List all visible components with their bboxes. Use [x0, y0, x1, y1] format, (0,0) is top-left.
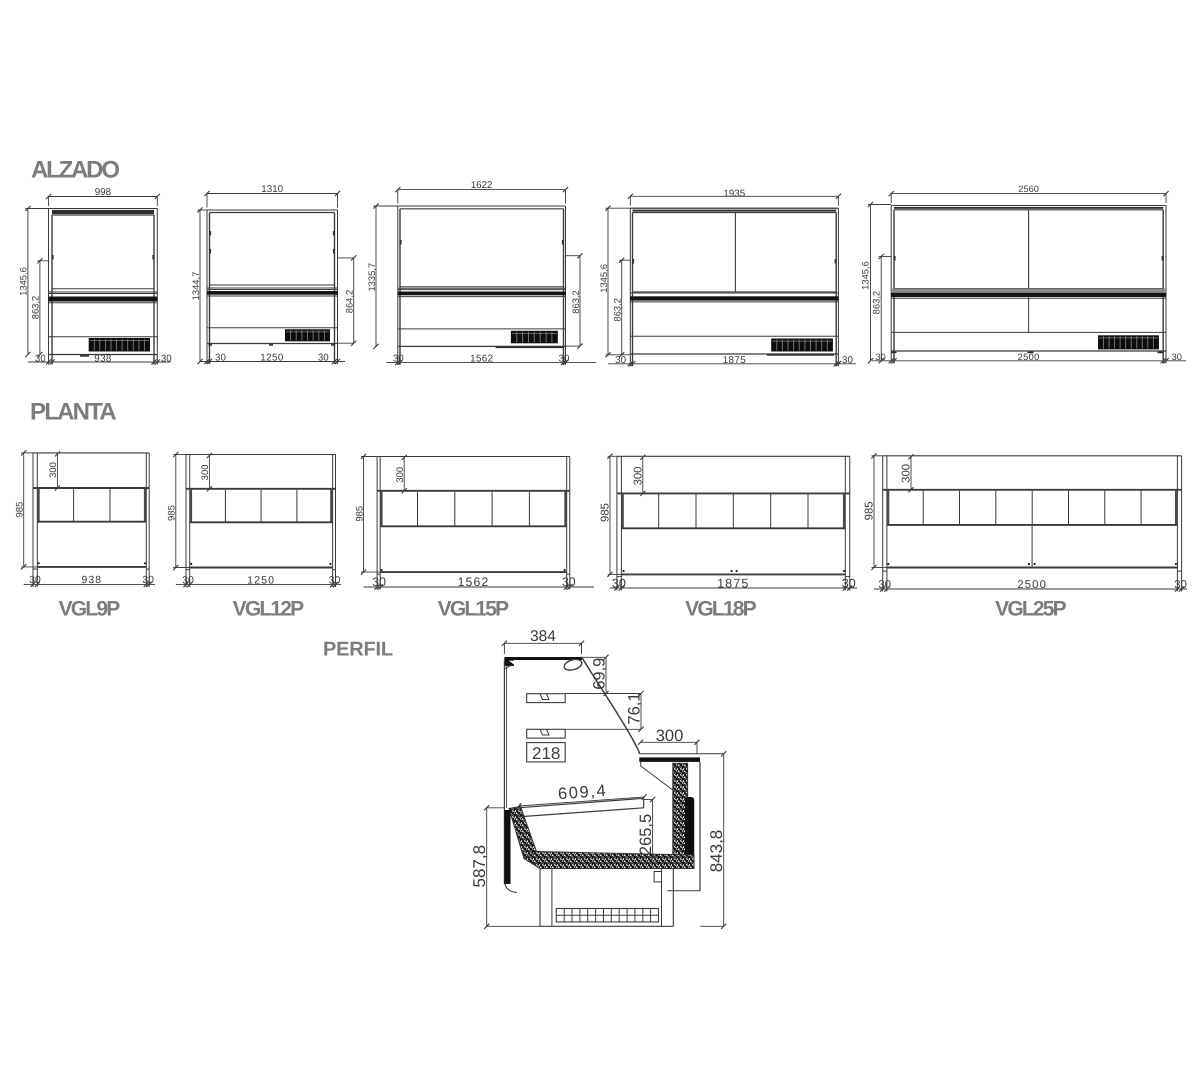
svg-text:30: 30: [142, 575, 154, 586]
svg-text:30: 30: [615, 355, 626, 366]
svg-text:300: 300: [656, 727, 684, 745]
svg-text:864,2: 864,2: [343, 290, 354, 313]
svg-text:VGL9P: VGL9P: [59, 597, 121, 620]
svg-text:300: 300: [901, 464, 913, 483]
svg-text:ALZADO: ALZADO: [31, 157, 119, 184]
svg-text:985: 985: [15, 502, 26, 518]
svg-text:938: 938: [81, 575, 102, 586]
svg-text:1250: 1250: [247, 575, 275, 587]
svg-text:300: 300: [48, 462, 59, 478]
svg-text:30: 30: [182, 575, 194, 587]
svg-text:863,2: 863,2: [612, 298, 623, 321]
svg-text:1250: 1250: [260, 353, 284, 364]
svg-text:30: 30: [842, 576, 856, 590]
svg-text:76,1: 76,1: [626, 692, 644, 724]
svg-text:PERFIL: PERFIL: [323, 639, 393, 661]
svg-text:863,2: 863,2: [871, 291, 882, 314]
svg-text:1335,7: 1335,7: [366, 263, 377, 292]
svg-text:30: 30: [1172, 352, 1182, 362]
svg-text:PLANTA: PLANTA: [30, 399, 116, 426]
svg-text:218: 218: [532, 744, 560, 763]
svg-text:1310: 1310: [261, 184, 283, 195]
svg-text:587,8: 587,8: [470, 845, 489, 888]
svg-text:69,9: 69,9: [591, 658, 609, 690]
svg-text:998: 998: [95, 187, 112, 198]
svg-text:VGL25P: VGL25P: [995, 597, 1067, 620]
svg-text:985: 985: [167, 505, 178, 521]
svg-text:384: 384: [530, 628, 556, 645]
svg-text:300: 300: [200, 464, 211, 480]
svg-text:1344,7: 1344,7: [190, 272, 201, 301]
svg-text:30: 30: [329, 575, 341, 587]
svg-text:30: 30: [161, 354, 172, 365]
svg-text:30: 30: [393, 354, 404, 365]
svg-text:2500: 2500: [1017, 579, 1047, 591]
svg-text:30: 30: [612, 576, 626, 590]
svg-text:1562: 1562: [470, 354, 493, 365]
svg-text:300: 300: [632, 467, 644, 486]
svg-text:1875: 1875: [717, 576, 749, 590]
svg-text:1562: 1562: [458, 575, 490, 589]
svg-text:30: 30: [878, 579, 891, 591]
svg-text:30: 30: [562, 575, 576, 589]
svg-text:985: 985: [600, 503, 612, 522]
svg-text:30: 30: [559, 354, 570, 365]
svg-text:1875: 1875: [723, 355, 747, 366]
svg-text:1622: 1622: [471, 180, 493, 191]
svg-text:VGL12P: VGL12P: [233, 597, 305, 620]
svg-text:VGL18P: VGL18P: [685, 597, 757, 620]
svg-text:1345,6: 1345,6: [598, 264, 609, 293]
svg-text:938: 938: [94, 354, 112, 365]
svg-text:30: 30: [842, 355, 853, 366]
svg-text:30: 30: [875, 352, 885, 362]
svg-text:VGL15P: VGL15P: [438, 597, 510, 620]
svg-text:30: 30: [372, 575, 386, 589]
svg-text:1345,6: 1345,6: [859, 261, 870, 290]
svg-text:985: 985: [354, 506, 365, 522]
svg-text:30: 30: [1174, 579, 1187, 591]
svg-text:30: 30: [29, 575, 41, 586]
svg-text:985: 985: [864, 501, 876, 520]
svg-text:30: 30: [35, 354, 46, 365]
svg-text:863,2: 863,2: [570, 290, 581, 313]
svg-text:30: 30: [215, 353, 226, 364]
svg-text:1345,6: 1345,6: [18, 267, 29, 296]
svg-text:863,2: 863,2: [30, 296, 41, 319]
svg-text:2560: 2560: [1018, 184, 1038, 194]
svg-text:609,4: 609,4: [557, 782, 607, 803]
svg-text:265,5: 265,5: [637, 814, 655, 855]
svg-text:30: 30: [318, 353, 329, 364]
svg-text:843,8: 843,8: [707, 830, 726, 873]
svg-text:1935: 1935: [723, 189, 745, 200]
svg-text:2500: 2500: [1018, 352, 1040, 362]
svg-text:300: 300: [395, 467, 406, 483]
